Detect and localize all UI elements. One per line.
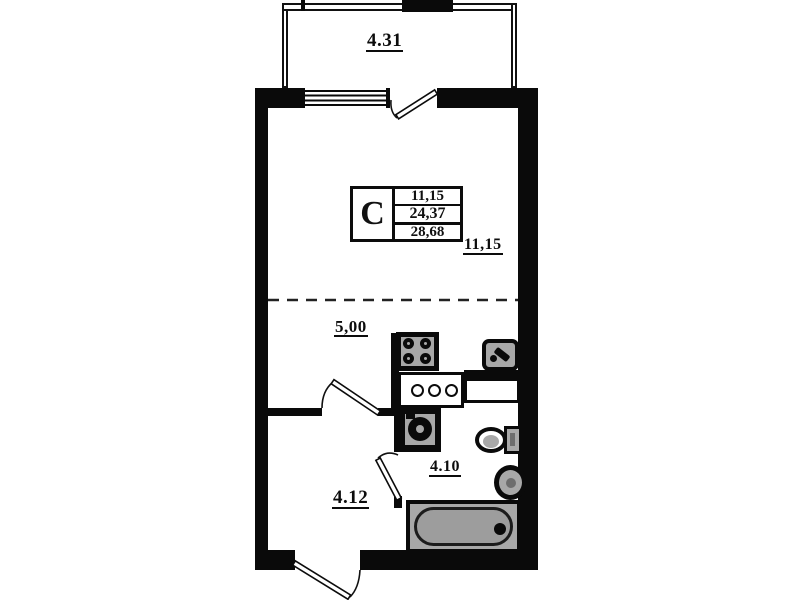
entry-door-icon <box>293 561 360 599</box>
balcony-wall-top <box>282 3 517 11</box>
door-leaf <box>376 458 401 500</box>
balcony-glazing-divider <box>301 0 305 11</box>
top-wall-left-segment <box>255 88 305 108</box>
door-swing-arc <box>350 570 360 597</box>
stove-icon <box>396 332 439 371</box>
counter-circle <box>428 384 441 397</box>
window-end-cap <box>386 88 390 108</box>
door-swing-arc <box>322 382 333 408</box>
apartment-info-box: C 11,15 24,37 28,68 <box>350 186 463 242</box>
info-row-living-area: 11,15 <box>395 189 460 206</box>
stove-burner <box>420 338 431 349</box>
bathtub-drain <box>494 523 506 535</box>
hall-wall-left-segment <box>268 408 322 416</box>
window-icon <box>303 90 390 106</box>
bathroom-area-label: 4.10 <box>429 459 461 477</box>
door-swing-arc <box>391 100 397 118</box>
door-leaf <box>331 380 380 415</box>
door-leaf <box>293 561 351 599</box>
bottom-wall-right-segment <box>360 550 538 570</box>
door-leaf <box>396 90 437 119</box>
kitchen-counter-plain <box>464 378 520 403</box>
info-row-total-area: 28,68 <box>395 225 460 240</box>
left-wall <box>255 88 268 570</box>
kitchen-zone-area-label: 5,00 <box>334 318 368 337</box>
counter-edge-band <box>464 370 522 378</box>
hallway-area-label: 4.12 <box>332 488 369 509</box>
balcony-door-icon <box>391 90 437 119</box>
stove-burner <box>403 353 414 364</box>
interior-door-icon <box>322 380 380 415</box>
room-dimension-label: 11,15 <box>463 237 503 255</box>
faucet-base <box>490 355 497 362</box>
washer-drum <box>408 417 432 441</box>
bottom-wall-left-segment <box>255 550 295 570</box>
apartment-type-letter: C <box>353 189 395 239</box>
bathroom-door-icon <box>376 453 401 500</box>
lines-overlay <box>0 0 799 600</box>
balcony-wall-left <box>282 3 288 88</box>
counter-circle <box>411 384 424 397</box>
floor-plan-canvas: C 11,15 24,37 28,68 4.31 11,15 5,00 4.10… <box>0 0 799 600</box>
washing-machine-icon <box>403 412 437 447</box>
balcony-wall-right <box>511 3 517 88</box>
apartment-info-rows: 11,15 24,37 28,68 <box>395 189 460 239</box>
kitchen-sink-icon <box>482 339 519 371</box>
stove-burner <box>403 338 414 349</box>
washbasin-icon <box>494 465 527 500</box>
kitchen-counter-icon <box>398 372 464 408</box>
balcony-area-label: 4.31 <box>366 31 403 52</box>
stove-burner <box>420 353 431 364</box>
bath-door-wall-stub <box>394 496 402 508</box>
info-row-area: 24,37 <box>395 206 460 225</box>
counter-circle <box>445 384 458 397</box>
door-swing-arc <box>378 453 398 458</box>
toilet-icon <box>475 427 507 453</box>
balcony-top-solid-segment <box>402 0 453 12</box>
